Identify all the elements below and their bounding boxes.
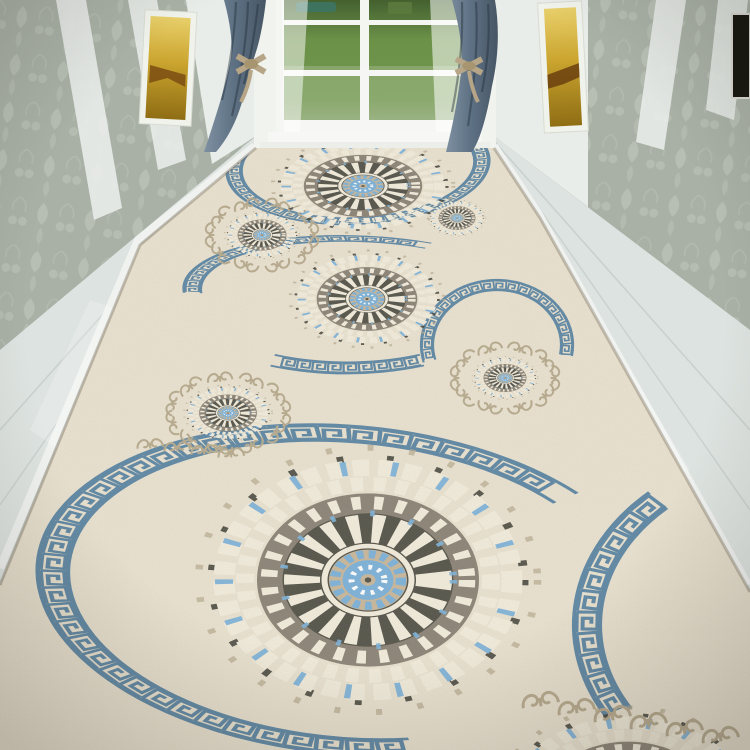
vignette-overlay xyxy=(0,0,750,750)
scene-canvas xyxy=(0,0,750,750)
hallway-carpet-photo xyxy=(0,0,750,750)
